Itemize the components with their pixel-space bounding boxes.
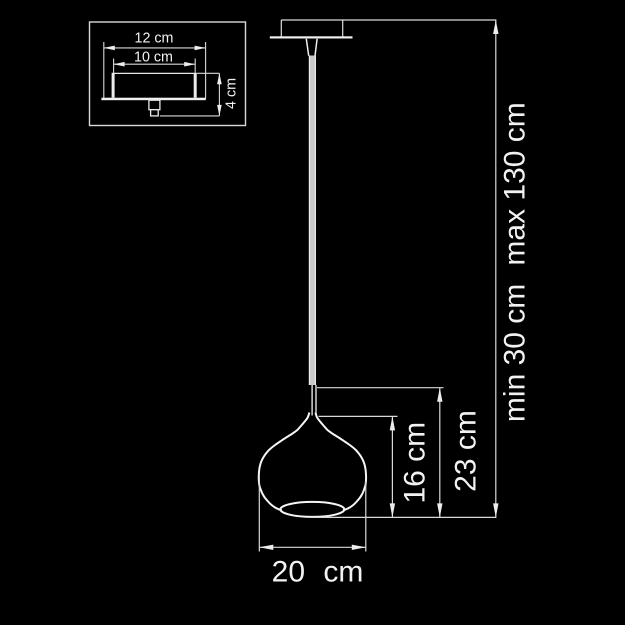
svg-text:16 cm: 16 cm <box>399 422 432 504</box>
svg-text:23 cm: 23 cm <box>450 410 483 492</box>
svg-text:12 cm: 12 cm <box>135 31 174 47</box>
svg-text:20 cm: 20 cm <box>272 556 364 589</box>
svg-text:min 30 cm: min 30 cm <box>499 284 532 422</box>
svg-text:4 cm: 4 cm <box>224 78 240 109</box>
svg-text:max 130 cm: max 130 cm <box>499 102 532 265</box>
svg-text:10 cm: 10 cm <box>134 50 173 66</box>
